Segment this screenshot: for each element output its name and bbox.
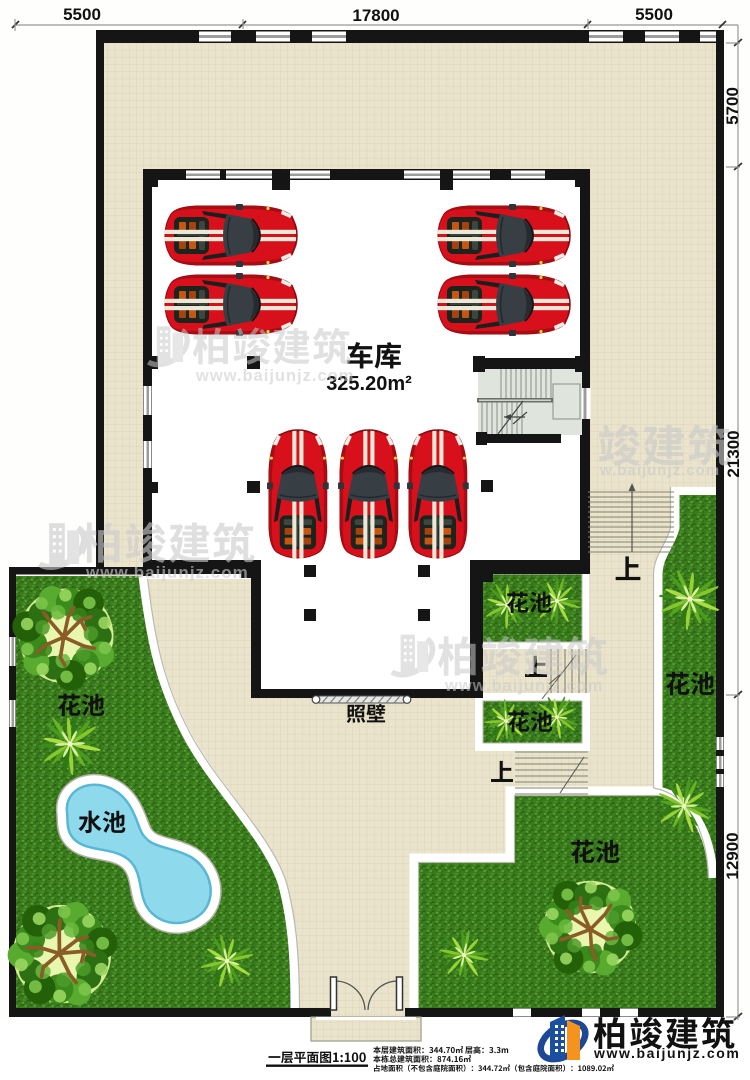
svg-text:w.baijunjz.com: w.baijunjz.com: [599, 462, 720, 479]
svg-text:5700: 5700: [723, 87, 742, 125]
svg-text:17800: 17800: [352, 6, 399, 25]
svg-text:www.baijunjz.com: www.baijunjz.com: [85, 563, 249, 582]
svg-text:5500: 5500: [63, 5, 101, 24]
svg-text:www.baijunjz.com: www.baijunjz.com: [593, 1045, 740, 1061]
svg-text:www.baijunjz.com: www.baijunjz.com: [195, 367, 354, 385]
svg-text:5500: 5500: [635, 5, 673, 24]
svg-text:21300: 21300: [724, 430, 743, 477]
svg-text:www.baijunjz.com: www.baijunjz.com: [444, 677, 603, 695]
svg-text:12900: 12900: [723, 832, 742, 879]
